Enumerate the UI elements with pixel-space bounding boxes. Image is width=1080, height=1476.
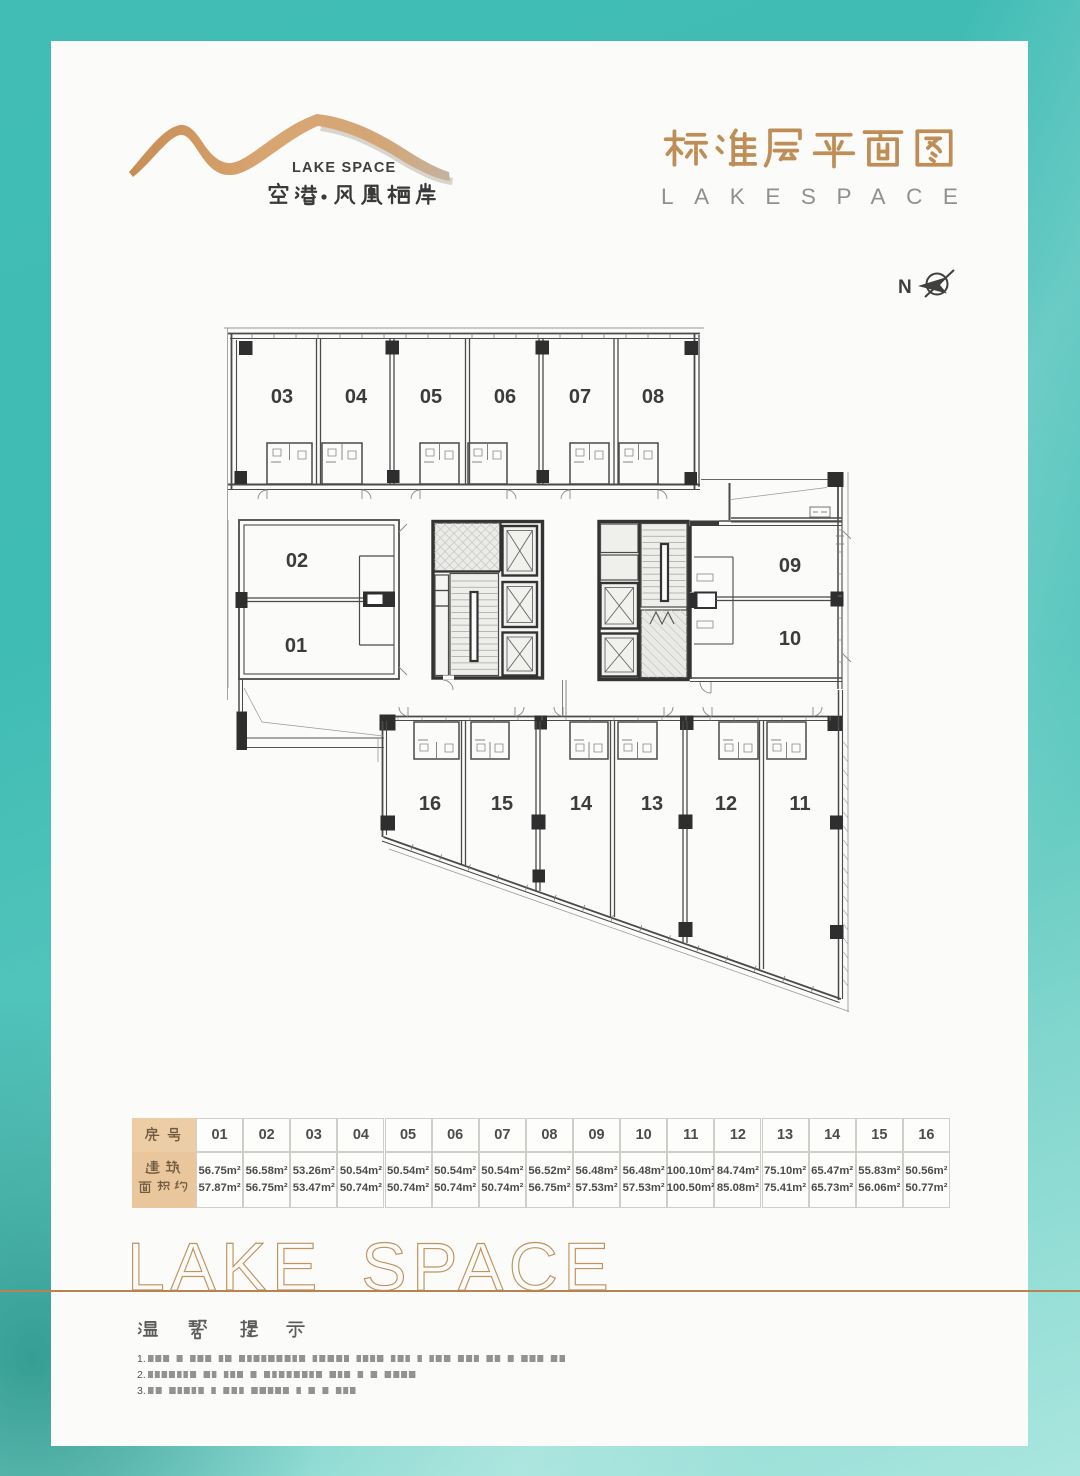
svg-text:3.: 3. [137,1385,146,1397]
svg-text:2.: 2. [137,1369,146,1381]
svg-text:1.: 1. [137,1353,146,1365]
